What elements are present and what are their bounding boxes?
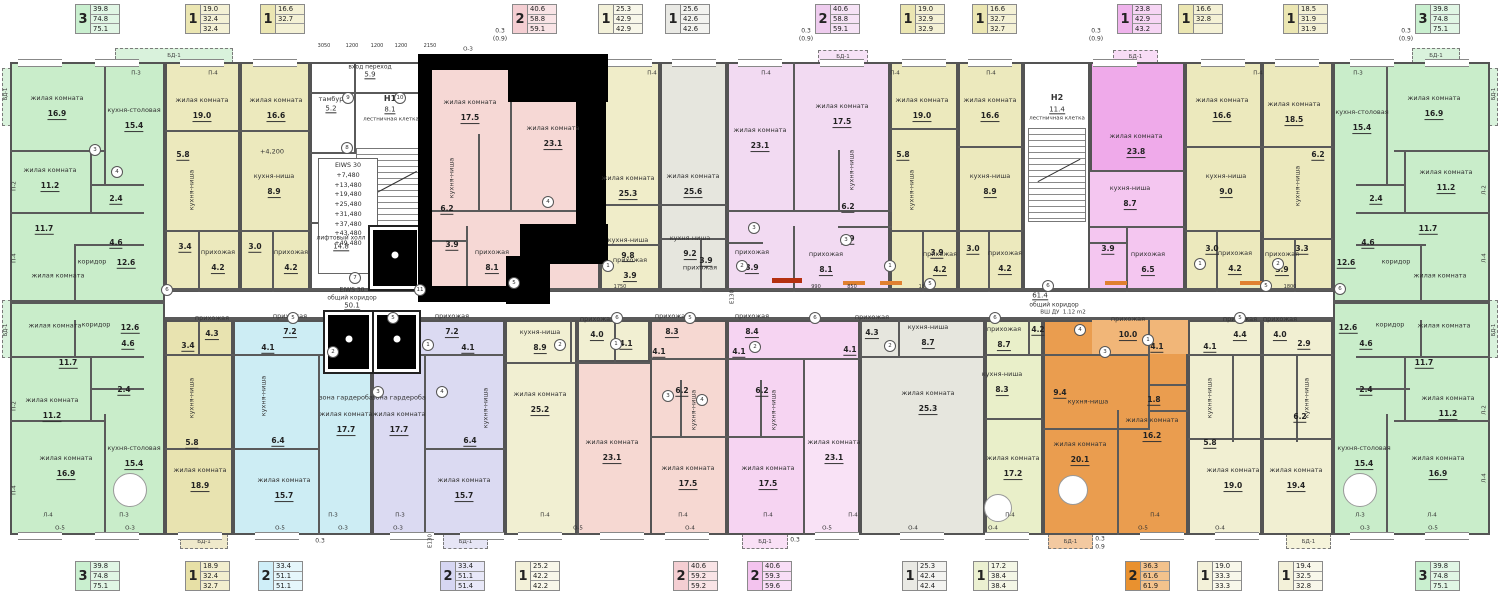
- room-area: 11.7: [59, 359, 78, 369]
- plan-label: П-4: [763, 513, 773, 520]
- room-label: 2.4: [1369, 187, 1382, 205]
- wall: [650, 358, 727, 360]
- plan-label: ВШ ДУ 1.12 m2: [1040, 310, 1085, 317]
- door-number: 3: [748, 222, 760, 234]
- plan-label: 1800: [1284, 284, 1297, 290]
- wall: [1296, 356, 1298, 442]
- apartment-badge[interactable]: 125.242.242.2: [515, 561, 560, 591]
- room-name: прихожая: [201, 249, 235, 256]
- plan-label: П-4: [678, 513, 688, 520]
- wall: [600, 204, 660, 206]
- badge-area-value: 39.8: [91, 5, 119, 15]
- plan-label: 3050: [318, 43, 331, 49]
- badge-area-value: 42.9: [614, 24, 642, 33]
- room-label: 6.4: [463, 429, 476, 447]
- window-opening: [738, 59, 782, 67]
- room-area: 3.9: [1101, 245, 1114, 255]
- badge-area-value: 42.4: [918, 581, 946, 590]
- room-label: прихожая4.3: [855, 314, 889, 340]
- plan-label: (0.9): [799, 35, 813, 42]
- room-label: жилая комната19.0: [895, 97, 948, 123]
- balcony: БД-1: [1286, 534, 1331, 549]
- room-label: жилая комната25.6: [666, 173, 719, 199]
- window-opening: [902, 59, 946, 67]
- badge-area-value: 16.6: [988, 5, 1016, 15]
- badge-area-value: 42.2: [531, 581, 559, 590]
- room-area: 6.2: [1293, 413, 1306, 423]
- badge-area-value: 36.3: [1141, 562, 1169, 572]
- room-area: 11.2: [1439, 411, 1458, 421]
- room-area: 6.2: [755, 387, 768, 397]
- room-name: кухня-ниша: [848, 150, 855, 191]
- room-area: 16.9: [1429, 471, 1448, 481]
- wall: [1185, 146, 1262, 148]
- apartment-badge[interactable]: 233.451.151.4: [440, 561, 485, 591]
- badge-area-value: 42.9: [614, 15, 642, 25]
- badge-area-value: 59.1: [528, 24, 556, 33]
- room-name: прихожая: [274, 249, 308, 256]
- room-name: коридор: [78, 258, 107, 265]
- room-label: зона гардероба: [319, 394, 373, 401]
- apartment-badge[interactable]: 117.238.438.4: [973, 561, 1018, 591]
- badge-area-value: 33.3: [1213, 572, 1241, 582]
- room-name: жилая комната: [1269, 467, 1322, 474]
- badge-area-value: 75.1: [1431, 24, 1459, 33]
- room-name: жилая комната: [23, 167, 76, 174]
- wall: [1148, 410, 1188, 412]
- badge-area-value: 42.9: [1133, 15, 1161, 25]
- room-label: прихожая8.7: [987, 326, 1021, 352]
- room-label: кухня-ниша: [848, 150, 855, 191]
- badge-room-count: 2: [259, 562, 273, 590]
- wall: [838, 150, 840, 210]
- room-name: прихожая: [1265, 251, 1299, 258]
- room-area: 2.4: [117, 386, 130, 396]
- plan-label: П-3: [119, 513, 129, 520]
- room-label: 11.7: [1419, 217, 1438, 235]
- badge-room-count: 1: [1279, 562, 1293, 590]
- room-label: 6.2: [675, 379, 688, 397]
- apartment-badge[interactable]: 240.659.359.6: [747, 561, 792, 591]
- room-area: 17.7: [337, 427, 356, 437]
- plan-label: Л-4: [1482, 253, 1489, 263]
- door-number: 5: [1234, 312, 1246, 324]
- room-name: жилая комната: [1421, 395, 1474, 402]
- room-name: прихожая: [580, 316, 614, 323]
- room-label: 6.4: [271, 429, 284, 447]
- plan-label: П-4: [1150, 513, 1160, 520]
- apartment-badge[interactable]: 118.531.931.9: [1283, 4, 1328, 34]
- window-opening: [600, 532, 644, 540]
- room-name: кухня-ниша: [1206, 173, 1247, 180]
- room-area: 6.5: [1141, 267, 1154, 277]
- wall: [10, 300, 165, 304]
- window-opening: [672, 59, 716, 67]
- room-area: 8.9: [267, 189, 280, 199]
- room-name: жилая комната: [28, 322, 81, 329]
- room-label: жилая комната25.3: [601, 175, 654, 201]
- room-label: кухня-ниша8.7: [1110, 185, 1151, 211]
- room-label: кухня-ниша: [1294, 166, 1301, 207]
- elevator-shaft: [377, 315, 416, 369]
- room-label: 12.6: [1339, 316, 1358, 334]
- plan-label: П-3: [395, 513, 405, 520]
- apartment-badge[interactable]: 233.451.151.1: [258, 561, 303, 591]
- wall: [240, 130, 310, 132]
- room-name: кухня-ниша: [1068, 398, 1109, 405]
- window-opening: [1140, 532, 1184, 540]
- room-area: 19.0: [193, 113, 212, 123]
- room-name: кухня-ниша: [908, 170, 915, 211]
- badge-areas: 25.342.442.4: [917, 562, 946, 590]
- balcony: БД-1: [1048, 534, 1093, 549]
- room-area: 4.1: [461, 344, 474, 354]
- badge-room-count: 2: [816, 5, 830, 33]
- room-name: кухня-ниша: [448, 158, 455, 199]
- elevator-lamp-icon: [393, 336, 400, 343]
- room-label: жилая комната16.9: [39, 455, 92, 481]
- window-opening: [985, 532, 1029, 540]
- room-area: 10.0: [1119, 332, 1138, 342]
- apartment-badge[interactable]: 119.032.932.9: [900, 4, 945, 34]
- door-number: 5: [684, 312, 696, 324]
- plan-label: Л-2: [1482, 185, 1489, 195]
- wall: [104, 414, 106, 535]
- room-label: кухня-ниша: [482, 388, 489, 429]
- room-area: 4.4: [1233, 332, 1246, 342]
- room-label: жилая комната20.1: [1053, 441, 1106, 467]
- wall: [1386, 414, 1388, 535]
- room-area: 25.3: [919, 406, 938, 416]
- badge-areas: 19.033.333.3: [1212, 562, 1241, 590]
- badge-area-value: 32.9: [916, 15, 944, 25]
- badge-area-value: 25.2: [531, 562, 559, 572]
- room-label: кухня-ниша8.7: [908, 324, 949, 350]
- room-area: 5.8: [176, 151, 189, 161]
- room-area: 8.3: [995, 387, 1008, 397]
- plan-label: О-4: [988, 526, 998, 533]
- badge-room-count: 3: [1416, 5, 1430, 33]
- plan-label: П-4: [1253, 71, 1263, 78]
- room-area: 5.8: [896, 151, 909, 161]
- room-area: 12.6: [117, 259, 136, 269]
- room-name: кухня-ниша: [260, 376, 267, 417]
- plan-label: лифтовый холл: [316, 234, 365, 241]
- room-area: 4.6: [121, 340, 134, 350]
- plan-label: О-5: [573, 526, 583, 533]
- door-number: 8: [341, 142, 353, 154]
- room-name: кухня-ниша: [770, 390, 777, 431]
- door-number: 2: [736, 260, 748, 272]
- plan-label: 1750: [614, 284, 627, 290]
- apartment-badge[interactable]: 240.658.859.1: [815, 4, 860, 34]
- plan-label: П-4: [12, 253, 19, 263]
- plan-label: Л-2: [1482, 405, 1489, 415]
- room-area: 23.1: [544, 141, 563, 151]
- room-area: 4.3: [205, 331, 218, 341]
- badge-areas: 19.032.932.9: [915, 5, 944, 33]
- plan-label: П-4: [848, 513, 858, 520]
- badge-area-value: 16.6: [276, 5, 304, 15]
- room-name: жилая комната: [39, 455, 92, 462]
- plan-label: П-2: [12, 181, 19, 191]
- badge-area-value: 51.4: [456, 581, 484, 590]
- badge-area-value: 32.9: [916, 24, 944, 33]
- door-number: 5: [508, 277, 520, 289]
- apartment-unit-apt-1r-19b[interactable]: [1188, 320, 1262, 535]
- threshold-mat: [880, 281, 902, 285]
- badge-area-value: 32.7: [988, 24, 1016, 33]
- room-label: 5.8: [176, 143, 189, 161]
- plan-label: E130: [428, 534, 435, 548]
- apartment-badge[interactable]: 125.342.942.9: [598, 4, 643, 34]
- badge-area-value: 51.1: [456, 572, 484, 582]
- apartment-badge[interactable]: 119.432.532.8: [1278, 561, 1323, 591]
- plan-label: Л-4: [1482, 473, 1489, 483]
- plan-label: П-4: [890, 71, 900, 78]
- room-name: жилая комната: [741, 465, 794, 472]
- wall: [1185, 230, 1262, 232]
- room-name: жилая комната: [30, 95, 83, 102]
- room-name: прихожая: [809, 251, 843, 258]
- room-label: прихожая4.2: [201, 249, 235, 275]
- badge-areas: 16.632.732.7: [987, 5, 1016, 33]
- balcony: БД-1: [742, 534, 788, 549]
- room-area: 4.3: [865, 330, 878, 340]
- room-label: кухня-ниша9.0: [1206, 173, 1247, 199]
- apartment-badge[interactable]: 116.632.7: [260, 4, 305, 34]
- apartment-badge[interactable]: 236.361.661.9: [1125, 561, 1170, 591]
- selected-apartment-outline: [418, 54, 432, 302]
- room-area: 20.1: [1071, 457, 1090, 467]
- room-label: прихожая8.1: [809, 251, 843, 277]
- apartment-badge[interactable]: 125.642.642.6: [665, 4, 710, 34]
- room-area: 18.5: [1285, 117, 1304, 127]
- room-name: кухня-ниша: [982, 371, 1023, 378]
- badge-room-count: 1: [901, 5, 915, 33]
- badge-area-value: 42.4: [918, 572, 946, 582]
- door-number: 6: [989, 312, 1001, 324]
- room-area: 2.9: [1297, 340, 1310, 350]
- door-number: 4: [436, 386, 448, 398]
- room-area: 4.2: [211, 265, 224, 275]
- room-name: жилая комната: [31, 272, 84, 279]
- door-number: 4: [111, 166, 123, 178]
- elevator: [368, 225, 422, 291]
- room-area: 4.0: [590, 332, 603, 342]
- room-area: 3.0: [1205, 245, 1218, 255]
- room-name: жилая комната: [815, 103, 868, 110]
- badge-area-value: 19.0: [916, 5, 944, 15]
- apartment-badge[interactable]: 125.342.442.4: [902, 561, 947, 591]
- room-label: коридор: [78, 258, 107, 265]
- room-label: прихожая4.0: [1263, 316, 1297, 342]
- room-area: 4.0: [1273, 332, 1286, 342]
- badge-area-value: 18.9: [201, 562, 229, 572]
- room-name: прихожая: [683, 264, 717, 271]
- apartment-badge[interactable]: 339.874.875.1: [1415, 4, 1460, 34]
- room-label: коридор: [82, 321, 111, 328]
- room-area: 15.7: [455, 493, 474, 503]
- elevator-lamp-icon: [392, 252, 399, 259]
- room-area: 5.8: [185, 439, 198, 449]
- window-opening: [665, 532, 709, 540]
- room-label: прихожая4.2: [923, 251, 957, 277]
- apartment-unit-apt-1r-253b[interactable]: [860, 320, 985, 535]
- badge-room-count: 3: [76, 5, 90, 33]
- badge-area-value: 51.1: [274, 581, 302, 590]
- plan-label: 0.3: [1091, 27, 1101, 34]
- badge-areas: 39.874.875.1: [1430, 5, 1459, 33]
- room-area: 4.6: [1359, 340, 1372, 350]
- room-area: 16.6: [1213, 113, 1232, 123]
- apartment-badge[interactable]: 240.659.259.2: [673, 561, 718, 591]
- room-area: 4.1: [652, 348, 665, 358]
- window-opening: [608, 59, 652, 67]
- badge-area-value: 25.6: [681, 5, 709, 15]
- badge-areas: 39.874.875.1: [90, 5, 119, 33]
- plan-label: О-4: [908, 526, 918, 533]
- elevator-shaft: [373, 230, 417, 286]
- room-label: прихожая3.9: [613, 257, 647, 283]
- room-area: 15.4: [1355, 461, 1374, 471]
- room-area: 8.3: [665, 329, 678, 339]
- room-label: кухня-ниша: [770, 390, 777, 431]
- badge-area-value: 42.6: [681, 15, 709, 25]
- wall: [1090, 170, 1185, 172]
- plan-label: 61.4: [1032, 291, 1048, 300]
- plan-label: П-3: [328, 513, 338, 520]
- room-label: коридор: [1382, 258, 1411, 265]
- apartment-badge[interactable]: 116.632.732.7: [972, 4, 1017, 34]
- window-opening: [1425, 532, 1469, 540]
- room-name: коридор: [82, 321, 111, 328]
- door-number: 2: [884, 340, 896, 352]
- window-opening: [518, 532, 562, 540]
- badge-areas: 36.361.661.9: [1140, 562, 1169, 590]
- wall: [198, 230, 200, 292]
- room-label: 5.8: [896, 143, 909, 161]
- wall: [310, 92, 425, 94]
- room-label: прихожая10.0: [1111, 316, 1145, 342]
- badge-areas: 40.658.859.1: [830, 5, 859, 33]
- room-label: 4.6: [1361, 231, 1374, 249]
- threshold-mat: [1240, 281, 1262, 285]
- room-area: 11.2: [41, 183, 60, 193]
- room-label: прихожая4.0: [580, 316, 614, 342]
- room-name: жилая комната: [437, 477, 490, 484]
- wall: [1148, 384, 1188, 386]
- plan-label: П-4: [1005, 513, 1015, 520]
- room-label: 5.8: [185, 431, 198, 449]
- apartment-badge[interactable]: 119.033.333.3: [1197, 561, 1242, 591]
- badge-room-count: 1: [1284, 5, 1298, 33]
- room-label: 3.0: [966, 237, 979, 255]
- room-name: жилая комната: [257, 477, 310, 484]
- room-name: жилая комната: [513, 391, 566, 398]
- wall: [1404, 356, 1406, 420]
- elevator-lamp-icon: [345, 336, 352, 343]
- room-area: 3.4: [178, 243, 191, 253]
- plan-label: 50.1: [344, 301, 360, 310]
- room-label: жилая комната19.4: [1269, 467, 1322, 493]
- plan-label: П-4: [761, 71, 771, 78]
- wall: [727, 358, 860, 360]
- apartment-badge[interactable]: 123.842.943.2: [1117, 4, 1162, 34]
- apartment-badge[interactable]: 118.932.432.7: [185, 561, 230, 591]
- badge-area-value: 75.1: [91, 24, 119, 33]
- room-label: жилая комната: [1417, 322, 1470, 329]
- door-number: 5: [387, 312, 399, 324]
- room-label: кухня-столовая15.4: [1335, 109, 1388, 135]
- room-name: жилая комната: [963, 97, 1016, 104]
- apartment-badge[interactable]: 339.874.875.1: [1415, 561, 1460, 591]
- room-area: 15.7: [275, 493, 294, 503]
- apartment-badge[interactable]: 339.874.875.1: [75, 4, 120, 34]
- room-name: жилая комната: [1413, 272, 1466, 279]
- wall: [1188, 354, 1262, 356]
- room-label: 6.2: [841, 195, 854, 213]
- room-name: кухня-ниша: [970, 173, 1011, 180]
- room-name: кухня-ниша: [482, 388, 489, 429]
- badge-areas: 33.451.151.1: [273, 562, 302, 590]
- badge-area-value: 58.8: [831, 15, 859, 25]
- room-name: жилая комната: [249, 97, 302, 104]
- apartment-badge[interactable]: 116.632.8: [1178, 4, 1223, 34]
- badge-area-value: 19.4: [1294, 562, 1322, 572]
- room-label: жилая комната17.5: [661, 465, 714, 491]
- room-name: жилая комната: [175, 97, 228, 104]
- room-label: прихожая: [683, 264, 717, 271]
- room-name: кухня-ниша: [670, 235, 711, 242]
- apartment-badge[interactable]: 240.658.859.1: [512, 4, 557, 34]
- room-label: жилая комната: [1413, 272, 1466, 279]
- room-name: коридор: [1376, 321, 1405, 328]
- badge-area-value: 39.8: [1431, 5, 1459, 15]
- plan-label: (0.9): [1089, 35, 1103, 42]
- room-name: жилая комната: [1195, 97, 1248, 104]
- door-number: 4: [696, 394, 708, 406]
- door-number: 6: [1042, 280, 1054, 292]
- badge-area-value: 74.8: [1431, 572, 1459, 582]
- room-area: 8.1: [485, 265, 498, 275]
- room-area: 17.5: [759, 481, 778, 491]
- badge-area-value: 33.4: [274, 562, 302, 572]
- apartment-badge[interactable]: 339.874.875.1: [75, 561, 120, 591]
- badge-room-count: 1: [261, 5, 275, 33]
- room-label: 6.2: [755, 379, 768, 397]
- door-number: 1: [1194, 258, 1206, 270]
- badge-area-value: [276, 24, 304, 33]
- door-number: 4: [1074, 324, 1086, 336]
- room-area: 6.2: [675, 387, 688, 397]
- badge-area-value: 74.8: [91, 572, 119, 582]
- room-label: 6.2: [440, 197, 453, 215]
- room-area: 11.7: [35, 225, 54, 235]
- room-name: жилая комната: [25, 397, 78, 404]
- door-number: 6: [161, 284, 173, 296]
- wall: [793, 62, 795, 212]
- apartment-badge[interactable]: 119.032.432.4: [185, 4, 230, 34]
- window-opening: [1275, 59, 1319, 67]
- plan-label: П-4: [208, 71, 218, 78]
- room-area: 15.4: [1353, 125, 1372, 135]
- room-label: жилая комната15.7: [437, 477, 490, 503]
- plan-label: О-4: [685, 526, 695, 533]
- room-name: кухня-ниша: [908, 324, 949, 331]
- wall: [1356, 184, 1406, 186]
- room-name: жилая комната: [1407, 95, 1460, 102]
